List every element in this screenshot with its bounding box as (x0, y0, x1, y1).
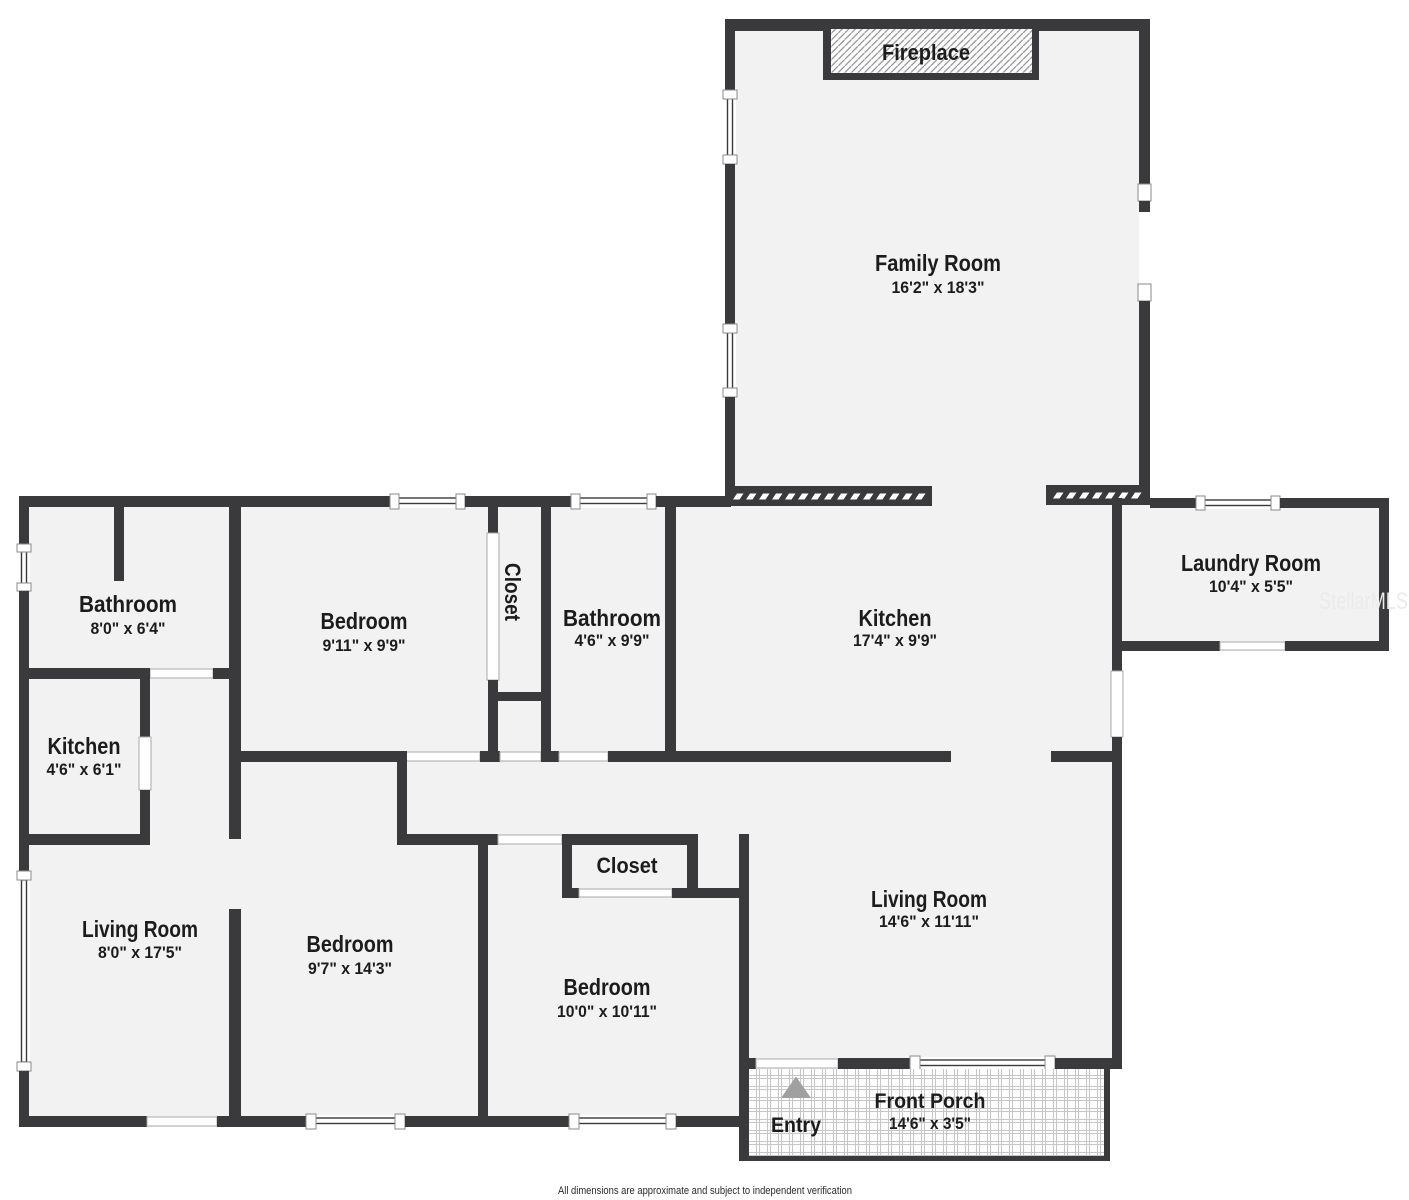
svg-text:Front Porch: Front Porch (875, 1089, 986, 1113)
svg-text:4'6" x 6'1": 4'6" x 6'1" (47, 761, 122, 779)
svg-text:Bedroom: Bedroom (307, 931, 394, 957)
svg-text:Bathroom: Bathroom (563, 605, 661, 631)
svg-text:Bedroom: Bedroom (564, 974, 651, 1000)
svg-text:Laundry Room: Laundry Room (1181, 550, 1321, 576)
svg-text:All dimensions are approximate: All dimensions are approximate and subje… (558, 1185, 852, 1197)
svg-text:9'11" x 9'9": 9'11" x 9'9" (323, 637, 406, 655)
svg-text:8'0" x 17'5": 8'0" x 17'5" (98, 944, 182, 962)
svg-text:17'4" x 9'9": 17'4" x 9'9" (853, 632, 937, 650)
svg-text:16'2" x 18'3": 16'2" x 18'3" (892, 279, 985, 297)
svg-text:StellarMLS: StellarMLS (1319, 588, 1408, 615)
svg-text:Kitchen: Kitchen (859, 605, 932, 631)
svg-text:10'4" x 5'5": 10'4" x 5'5" (1209, 578, 1293, 596)
svg-text:Closet: Closet (597, 853, 659, 878)
svg-text:14'6" x 11'11": 14'6" x 11'11" (879, 913, 979, 931)
svg-text:Living Room: Living Room (82, 916, 198, 942)
svg-text:Entry: Entry (771, 1113, 821, 1137)
svg-text:Fireplace: Fireplace (882, 40, 970, 65)
svg-text:Kitchen: Kitchen (48, 733, 121, 759)
svg-text:Closet: Closet (500, 563, 525, 622)
svg-text:Living Room: Living Room (871, 886, 987, 912)
svg-text:10'0" x 10'11": 10'0" x 10'11" (557, 1003, 657, 1021)
svg-text:Bathroom: Bathroom (79, 591, 177, 617)
svg-text:Family Room: Family Room (875, 250, 1001, 276)
svg-text:14'6" x 3'5": 14'6" x 3'5" (889, 1115, 971, 1133)
svg-text:4'6" x 9'9": 4'6" x 9'9" (575, 632, 650, 650)
svg-text:9'7" x 14'3": 9'7" x 14'3" (308, 960, 392, 978)
svg-text:8'0" x 6'4": 8'0" x 6'4" (91, 620, 166, 638)
svg-text:Bedroom: Bedroom (321, 608, 408, 634)
